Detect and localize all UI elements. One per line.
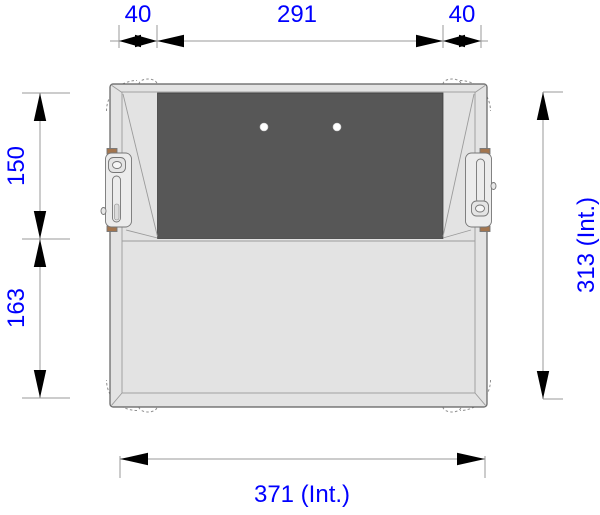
left-latch — [101, 149, 132, 232]
dim-label-right: 313 (Int.) — [573, 197, 600, 293]
technical-drawing-canvas: 40 291 40 150 163 313 (Int.) 371 (Int.) — [0, 0, 600, 515]
dim-label-left-lower: 163 — [3, 288, 30, 328]
dim-label-top-center: 291 — [277, 1, 317, 28]
right-latch-hole — [476, 205, 485, 212]
arrowhead — [457, 453, 485, 465]
panel-hole-right — [333, 123, 341, 131]
arrowhead — [537, 371, 549, 399]
arrowhead — [34, 370, 46, 398]
dim-right: 313 (Int.) — [537, 92, 600, 399]
dim-bottom: 371 (Int.) — [120, 453, 485, 508]
arrowhead — [416, 35, 443, 47]
arrowhead — [120, 453, 148, 465]
left-latch-nub — [101, 208, 106, 215]
arrowhead — [157, 35, 184, 47]
edge-foot-bottom-left — [139, 407, 157, 412]
dim-label-left-upper: 150 — [3, 146, 30, 186]
left-latch-hole — [113, 162, 122, 169]
dim-label-top-right: 40 — [449, 1, 476, 28]
edge-foot-top-left — [139, 79, 157, 84]
right-latch — [466, 149, 497, 232]
arrowhead — [34, 211, 46, 239]
edge-foot-bottom-right — [443, 407, 461, 412]
edge-foot-top-right — [443, 79, 461, 84]
arrowhead — [34, 93, 46, 121]
arrowhead — [537, 92, 549, 120]
case-technical-drawing: 40 291 40 150 163 313 (Int.) 371 (Int.) — [0, 0, 600, 515]
dim-left: 150 163 — [3, 93, 70, 398]
dim-label-top-left: 40 — [125, 1, 152, 28]
left-latch-slider — [115, 204, 120, 220]
arrowhead — [135, 35, 157, 47]
dim-top: 40 291 40 — [110, 1, 488, 48]
case-body — [107, 79, 491, 412]
dim-label-bottom: 371 (Int.) — [254, 481, 350, 508]
right-latch-nub — [491, 183, 496, 190]
arrowhead — [34, 239, 46, 267]
panel-hole-left — [260, 123, 268, 131]
lid-recess-panel — [158, 93, 444, 239]
arrowhead — [459, 35, 481, 47]
